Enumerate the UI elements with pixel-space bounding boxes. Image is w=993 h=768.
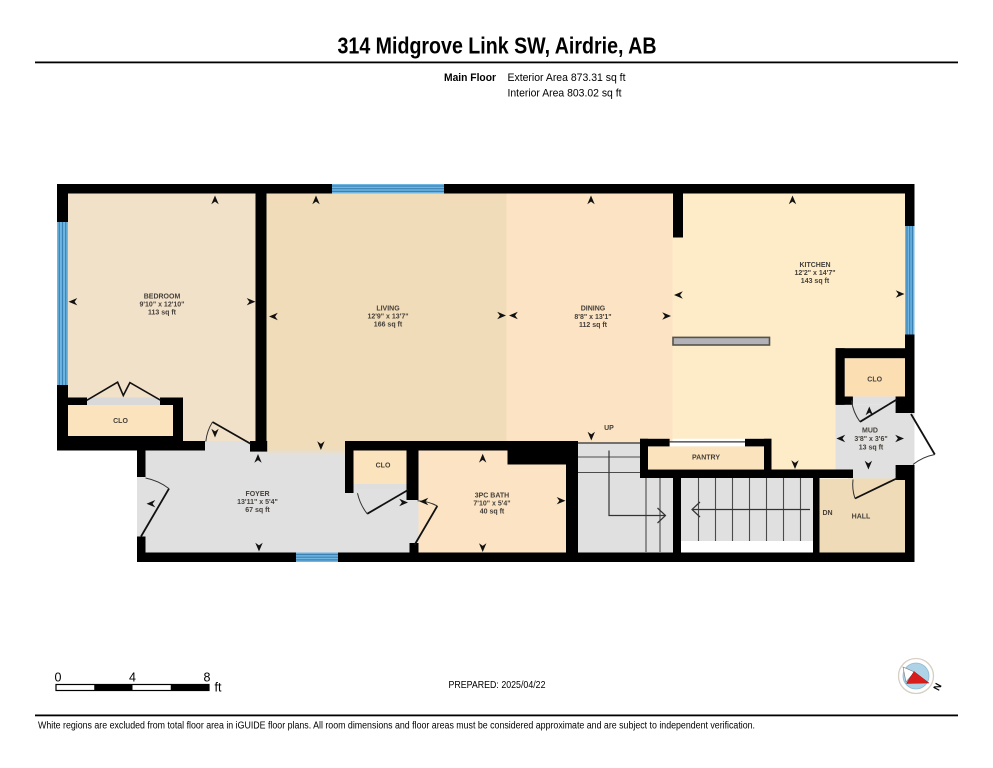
svg-text:Main Floor: Main Floor bbox=[444, 72, 497, 84]
svg-text:DN: DN bbox=[822, 510, 832, 517]
svg-text:13'11" x 5'4": 13'11" x 5'4" bbox=[237, 499, 278, 506]
svg-text:Interior Area 803.02 sq ft: Interior Area 803.02 sq ft bbox=[508, 88, 622, 100]
svg-text:Exterior Area 873.31 sq ft: Exterior Area 873.31 sq ft bbox=[508, 72, 626, 84]
svg-text:White regions are excluded fro: White regions are excluded from total fl… bbox=[38, 721, 755, 732]
svg-text:PREPARED: 2025/04/22: PREPARED: 2025/04/22 bbox=[449, 679, 546, 691]
svg-text:KITCHEN: KITCHEN bbox=[799, 262, 830, 269]
svg-text:12'9" x 13'7": 12'9" x 13'7" bbox=[367, 314, 408, 321]
svg-text:PANTRY: PANTRY bbox=[692, 455, 720, 462]
svg-text:113 sq ft: 113 sq ft bbox=[148, 310, 177, 317]
svg-text:8'8" x 13'1": 8'8" x 13'1" bbox=[574, 314, 611, 321]
svg-text:314 Midgrove Link SW, Airdrie,: 314 Midgrove Link SW, Airdrie, AB bbox=[338, 33, 657, 59]
svg-text:12'2" x 14'7": 12'2" x 14'7" bbox=[794, 270, 835, 277]
svg-text:40 sq ft: 40 sq ft bbox=[480, 509, 505, 516]
svg-text:LIVING: LIVING bbox=[376, 306, 400, 313]
svg-text:112 sq ft: 112 sq ft bbox=[579, 322, 608, 329]
svg-text:8: 8 bbox=[204, 671, 211, 685]
svg-text:CLO: CLO bbox=[867, 377, 882, 384]
svg-text:CLO: CLO bbox=[376, 463, 391, 470]
svg-text:0: 0 bbox=[55, 671, 62, 685]
svg-text:166 sq ft: 166 sq ft bbox=[374, 322, 403, 329]
svg-text:ft: ft bbox=[215, 681, 222, 695]
svg-text:9'10" x 12'10": 9'10" x 12'10" bbox=[139, 302, 184, 309]
svg-text:BEDROOM: BEDROOM bbox=[144, 294, 181, 301]
svg-text:MUD: MUD bbox=[862, 428, 878, 435]
svg-text:FOYER: FOYER bbox=[245, 491, 269, 498]
svg-text:13 sq ft: 13 sq ft bbox=[859, 445, 884, 452]
svg-text:4: 4 bbox=[129, 671, 136, 685]
svg-text:3PC BATH: 3PC BATH bbox=[475, 493, 509, 500]
svg-text:143 sq ft: 143 sq ft bbox=[801, 278, 830, 285]
svg-text:3'8" x 3'6": 3'8" x 3'6" bbox=[854, 436, 887, 443]
svg-text:7'10" x 5'4": 7'10" x 5'4" bbox=[473, 501, 510, 508]
svg-text:HALL: HALL bbox=[852, 514, 871, 521]
svg-text:67 sq ft: 67 sq ft bbox=[245, 507, 270, 514]
svg-text:DINING: DINING bbox=[581, 306, 606, 313]
svg-text:UP: UP bbox=[604, 425, 614, 432]
svg-text:CLO: CLO bbox=[113, 418, 128, 425]
